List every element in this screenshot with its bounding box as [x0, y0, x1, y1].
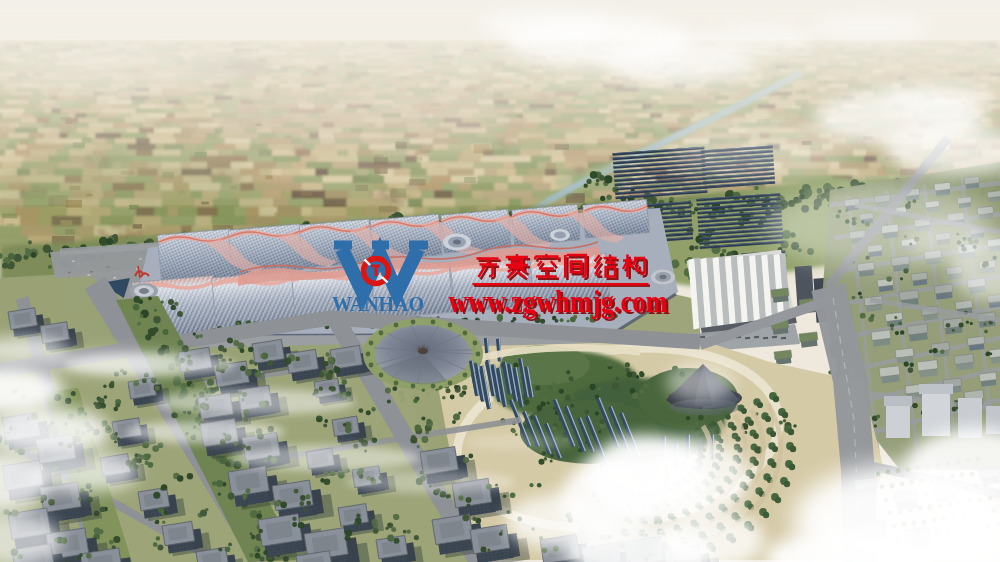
svg-text:www.zgwhmjg.com: www.zgwhmjg.com — [449, 284, 668, 319]
svg-text:WANHAO: WANHAO — [332, 293, 424, 315]
